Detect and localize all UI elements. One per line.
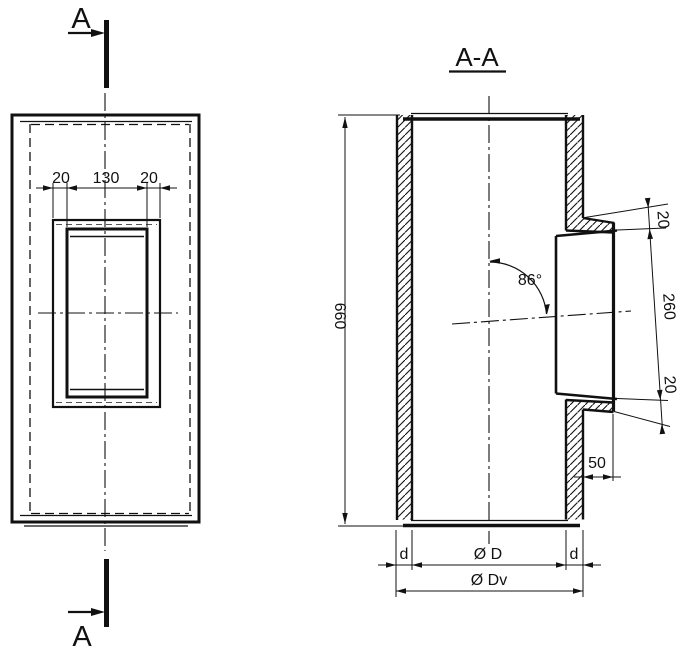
- rim-lines: [403, 114, 580, 526]
- dim-branch-angle: 86°: [518, 272, 542, 289]
- dim-wall-thickness-right: d: [570, 546, 579, 563]
- branch-dim-lines: [585, 202, 670, 430]
- drawing-canvas: A A A-A 20 130 20 660 86° 20 260 20 50 d…: [0, 0, 684, 651]
- section-marker-top-label: A: [71, 3, 91, 35]
- branch-outline: [556, 223, 617, 412]
- section-marker-bottom-label: A: [72, 621, 92, 651]
- dim-inner-diameter: Ø D: [474, 546, 502, 563]
- dim-ledge-width: 50: [588, 455, 606, 472]
- dim-flange-border-right: 20: [140, 170, 158, 187]
- section-view: [338, 72, 670, 598]
- engineering-drawing-page: A A A-A 20 130 20 660 86° 20 260 20 50 d…: [0, 0, 684, 651]
- dim-wall-thickness-left: d: [400, 546, 409, 563]
- dim-flange-inner-width: 130: [93, 170, 120, 187]
- front-centerlines: [38, 93, 178, 551]
- section-title: A-A: [455, 42, 499, 72]
- dim-outer-diameter: Ø Dv: [471, 572, 507, 589]
- front-view: [12, 20, 199, 627]
- dim-branch-offset-top: 20: [653, 210, 671, 229]
- dim-branch-offset-bottom: 20: [660, 375, 678, 394]
- dim-branch-diameter: 260: [659, 293, 678, 321]
- dim-flange-border-left: 20: [52, 170, 70, 187]
- branch-axis: [452, 311, 631, 324]
- section-cut-marks: [68, 20, 107, 627]
- dim-body-height: 660: [331, 303, 348, 330]
